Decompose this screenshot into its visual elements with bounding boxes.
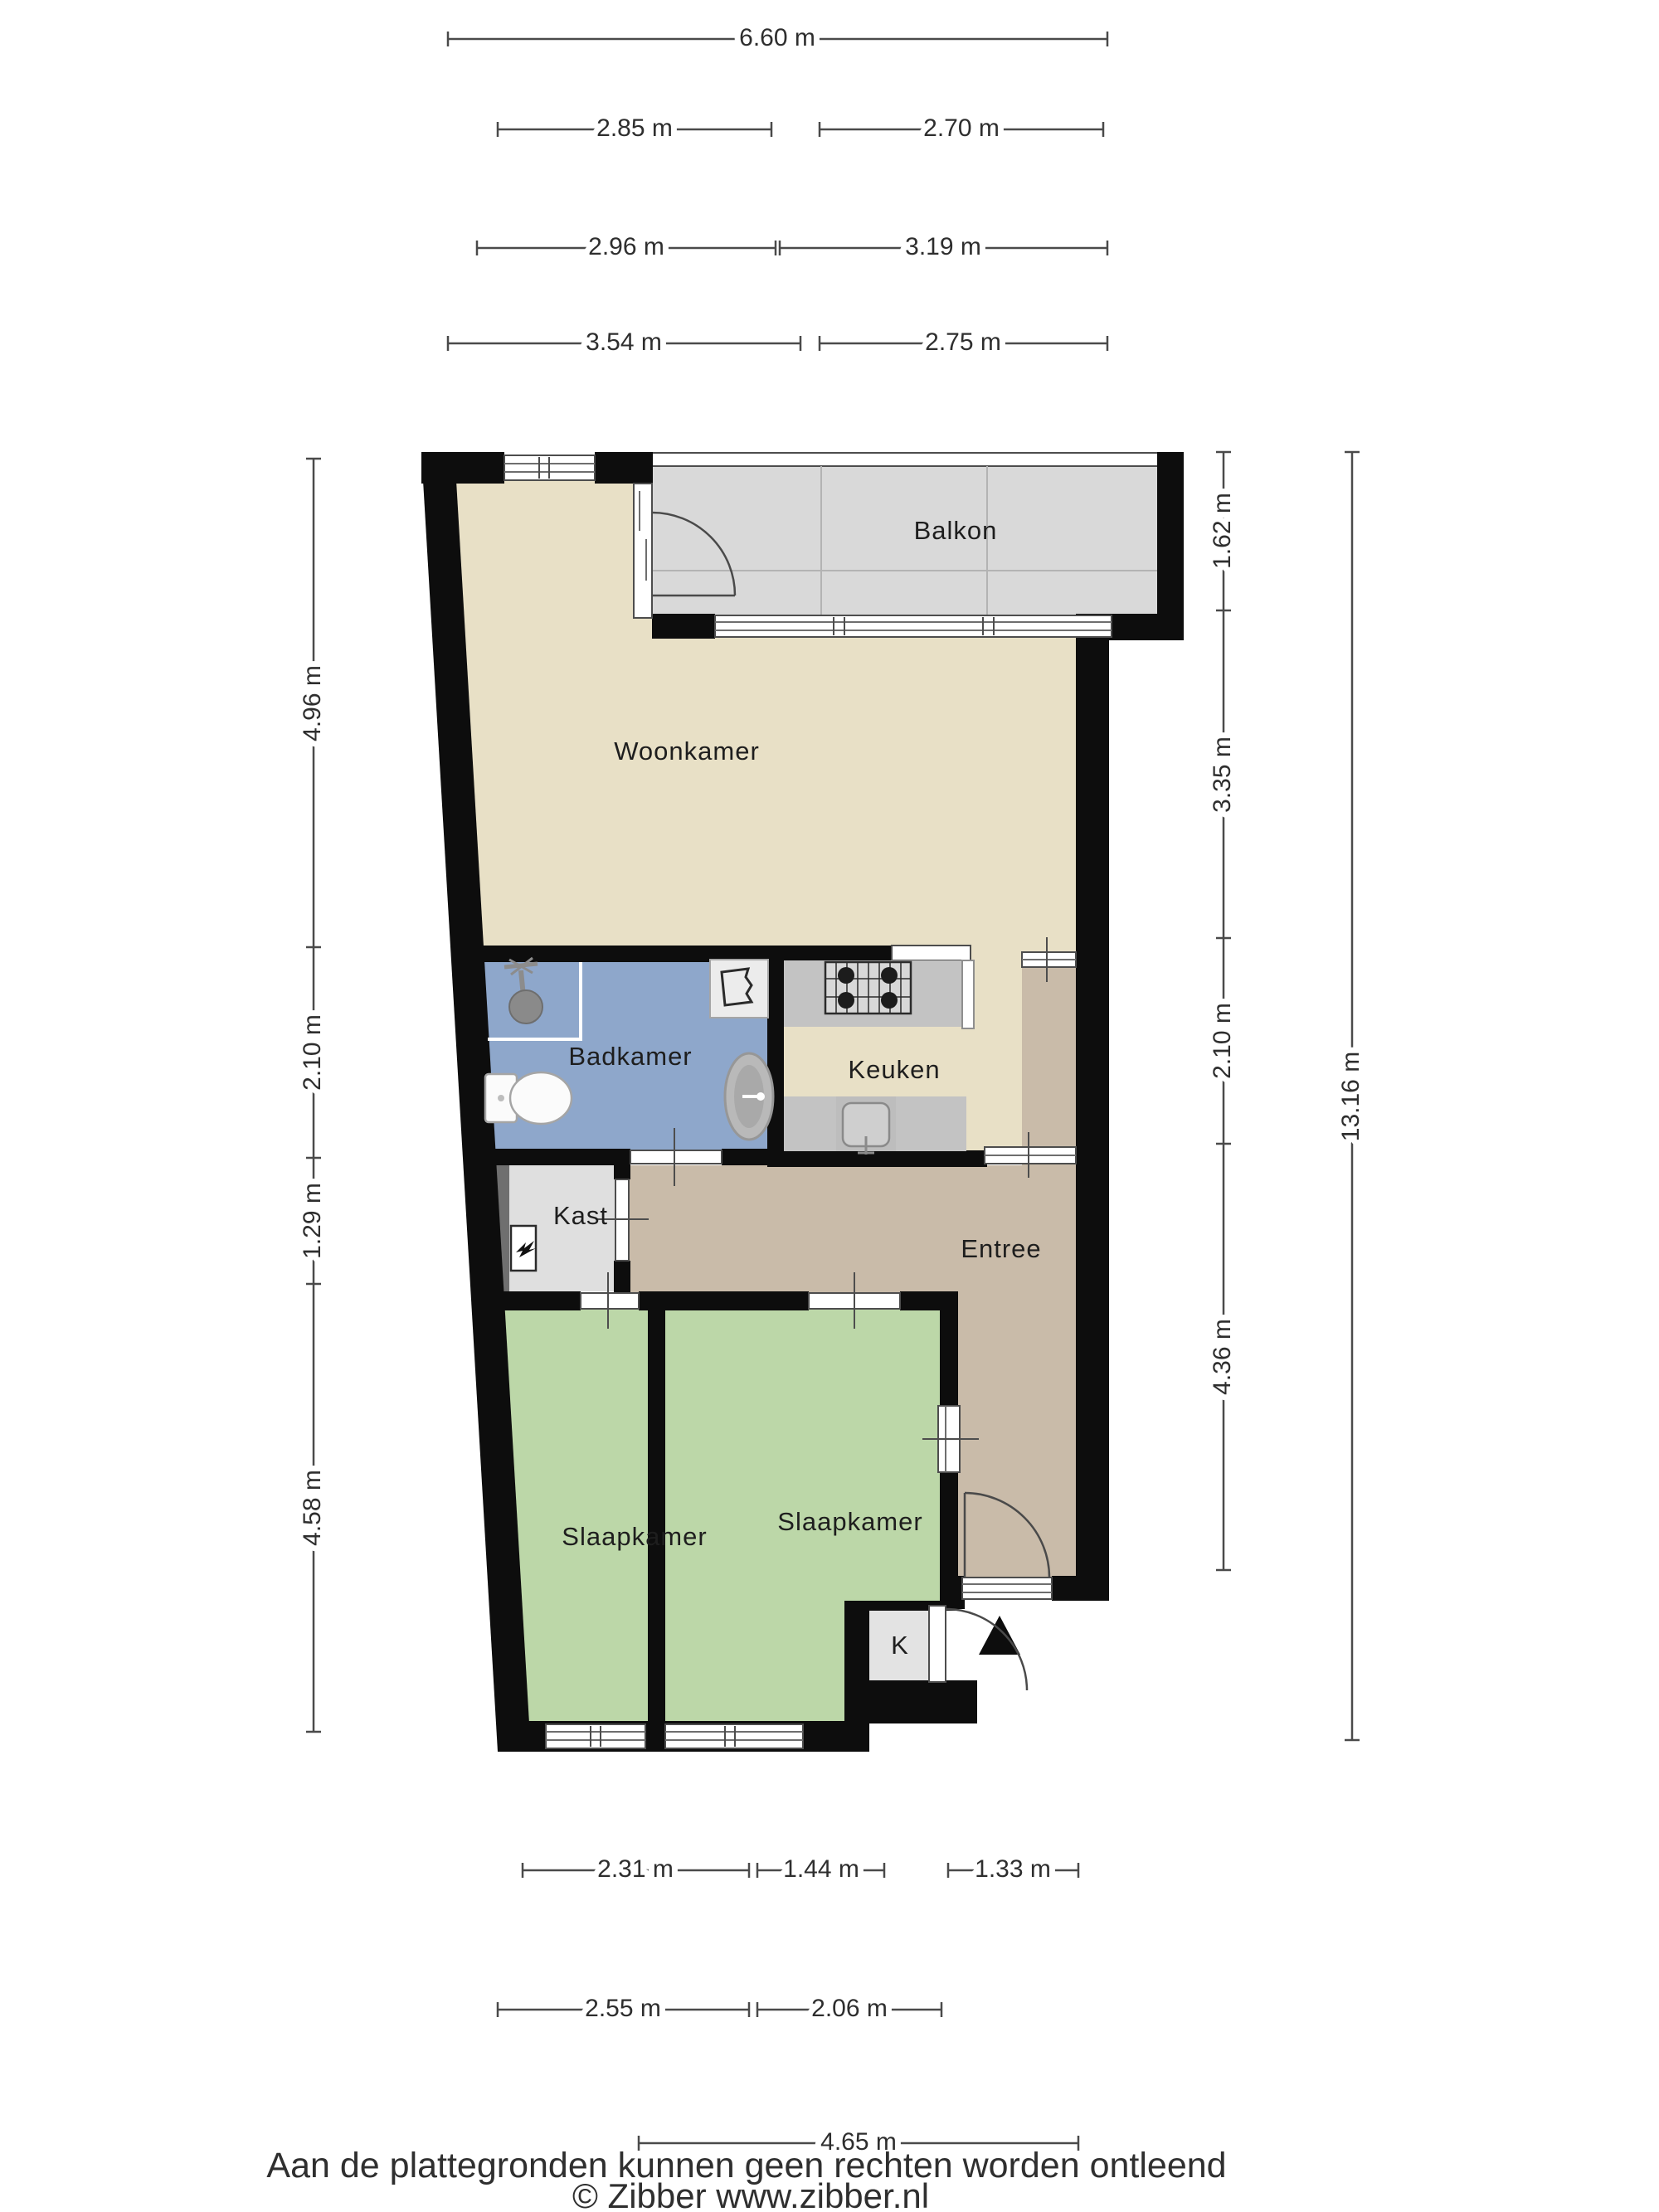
svg-text:6.60 m: 6.60 m <box>739 24 815 51</box>
wall-entree-bottom-r <box>1052 1576 1109 1601</box>
room-badkamer-label: Badkamer <box>568 1042 692 1071</box>
dim-left-chain: 4.96 m 2.10 m 1.29 m 4.58 m <box>299 459 326 1732</box>
wall-woonkamer-badkamer <box>473 946 892 962</box>
room-slaapkamer2-label-text: Slaapkamer <box>777 1507 922 1536</box>
svg-text:1.33 m: 1.33 m <box>975 1855 1051 1883</box>
svg-text:2.55 m: 2.55 m <box>585 1995 661 2022</box>
svg-text:2.10 m: 2.10 m <box>1209 1003 1236 1079</box>
window-woonkamer-top <box>504 455 595 480</box>
wall-kast-right-bottom <box>614 1261 630 1294</box>
dim-top-1: 6.60 m <box>448 24 1107 51</box>
window-slaapkamer1-bottom <box>546 1724 645 1748</box>
svg-text:2.10 m: 2.10 m <box>299 1014 326 1091</box>
wall-balkon-right <box>1157 452 1184 640</box>
svg-text:3.35 m: 3.35 m <box>1209 737 1236 813</box>
entrance-marker-icon <box>979 1616 1020 1655</box>
footer: Aan de plattegronden kunnen geen rechten… <box>266 2146 1226 2212</box>
balkon-railing <box>652 453 1160 466</box>
dim-bottom-2: 2.55 m 2.06 m <box>498 1995 941 2022</box>
room-slaapkamer1-label: Slaapkamer <box>562 1522 707 1551</box>
wall-keuken-bottom <box>767 1150 987 1167</box>
keuken-pass-through <box>892 946 971 960</box>
dim-bottom-1: 2.31 m 1.44 m 1.33 m <box>523 1855 1078 1883</box>
wall-right-outer <box>1076 614 1109 1601</box>
room-woonkamer-label: Woonkamer <box>614 737 760 766</box>
svg-text:1.29 m: 1.29 m <box>299 1183 326 1259</box>
floorplan-svg: Balkon Woonkamer Badkamer Keuken Kast En… <box>0 0 1659 2212</box>
door-balkon-glass <box>634 484 652 618</box>
wall-top-left <box>421 452 504 484</box>
window-slaapkamer2-bottom <box>665 1724 803 1748</box>
room-kast-label: Kast <box>553 1201 608 1230</box>
wall-badkamer-bottom-l <box>473 1149 630 1165</box>
wall-badkamer-keuken <box>767 946 784 1165</box>
svg-text:3.54 m: 3.54 m <box>586 328 662 356</box>
dim-top-4: 3.54 m 2.75 m <box>448 328 1107 356</box>
room-entree-label: Entree <box>961 1234 1041 1263</box>
svg-text:2.31 m: 2.31 m <box>597 1855 674 1883</box>
svg-text:2.06 m: 2.06 m <box>811 1995 888 2022</box>
svg-text:4.96 m: 4.96 m <box>299 665 326 741</box>
svg-text:1.44 m: 1.44 m <box>783 1855 859 1883</box>
svg-text:2.85 m: 2.85 m <box>596 114 673 142</box>
wall-slaapkamers-top-b <box>639 1291 809 1310</box>
window-balkon-bottom <box>715 615 1112 637</box>
wall-slaapkamers-top-a <box>494 1291 581 1310</box>
room-balkon-floor <box>652 464 1157 617</box>
room-k-label: K <box>891 1631 909 1660</box>
wall-balkon-bottom-right <box>1112 614 1128 639</box>
ventilation-unit-icon <box>511 1226 536 1271</box>
room-keuken-label: Keuken <box>848 1055 940 1084</box>
shower-head-icon <box>509 990 542 1023</box>
kitchen-counter-bottom <box>784 1096 966 1155</box>
svg-text:4.58 m: 4.58 m <box>299 1470 326 1546</box>
toilet <box>485 1072 572 1124</box>
washbasin-counter <box>710 960 768 1018</box>
svg-text:1.62 m: 1.62 m <box>1209 493 1236 569</box>
svg-text:2.75 m: 2.75 m <box>925 328 1001 356</box>
dim-right-chain: 1.62 m 3.35 m 2.10 m 4.36 m <box>1209 452 1236 1570</box>
svg-text:2.96 m: 2.96 m <box>588 233 664 260</box>
dim-top-3: 2.96 m 3.19 m <box>477 233 1107 260</box>
svg-text:2.70 m: 2.70 m <box>923 114 1000 142</box>
floorplan-page: Balkon Woonkamer Badkamer Keuken Kast En… <box>0 0 1659 2212</box>
svg-text:13.16 m: 13.16 m <box>1337 1052 1365 1141</box>
wall-top-mid <box>595 452 653 484</box>
dim-right-total: 13.16 m <box>1337 452 1365 1740</box>
entree-right-strip-floor <box>1022 954 1078 1165</box>
svg-text:4.36 m: 4.36 m <box>1209 1319 1236 1395</box>
svg-text:3.19 m: 3.19 m <box>905 233 981 260</box>
wall-between-slaapkamers <box>648 1309 665 1723</box>
footer-credit: © Zibber www.zibber.nl <box>572 2176 929 2212</box>
stove <box>825 962 911 1014</box>
wall-k-bottom <box>844 1680 977 1723</box>
wall-kast-right-top <box>614 1165 630 1179</box>
oval-basin <box>725 1053 773 1140</box>
dim-top-2: 2.85 m 2.70 m <box>498 114 1103 142</box>
wall-balkon-bottom-left <box>652 614 715 639</box>
room-balkon-label: Balkon <box>914 516 998 545</box>
